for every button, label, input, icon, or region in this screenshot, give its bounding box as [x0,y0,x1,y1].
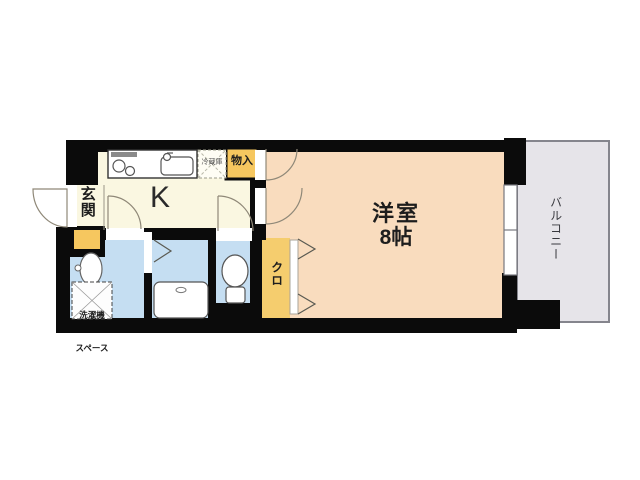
washer-space-label: 洗濯機 スペース [70,288,114,365]
toilet-icon [222,255,248,303]
entrance-door-arc [33,189,67,227]
main-room-size: 8帖 [348,227,444,249]
balcony-window [504,185,517,275]
closet-door-strip [290,240,298,314]
washer-space-line1: 洗濯機 [70,310,114,321]
storage-label: 物入 [226,156,258,168]
closet-label: クロ [270,261,283,287]
washer-space-line2: スペース [70,343,114,354]
entrance-label: 玄関 [79,186,95,218]
balcony-label: バルコニー [549,196,562,261]
main-room-label: 洋室 [348,202,444,225]
bathtub-icon [154,282,208,318]
kitchen-label: K [150,182,170,214]
balcony-floor [517,141,609,322]
shoe-cabinet [74,230,100,249]
floor-plan-drawing [0,0,640,480]
floor-plan: K 洋室 8帖 バルコニー 玄関 クロ 物入 冷蔵庫 洗濯機 スペース [0,0,640,480]
refrigerator-label: 冷蔵庫 [197,159,227,166]
